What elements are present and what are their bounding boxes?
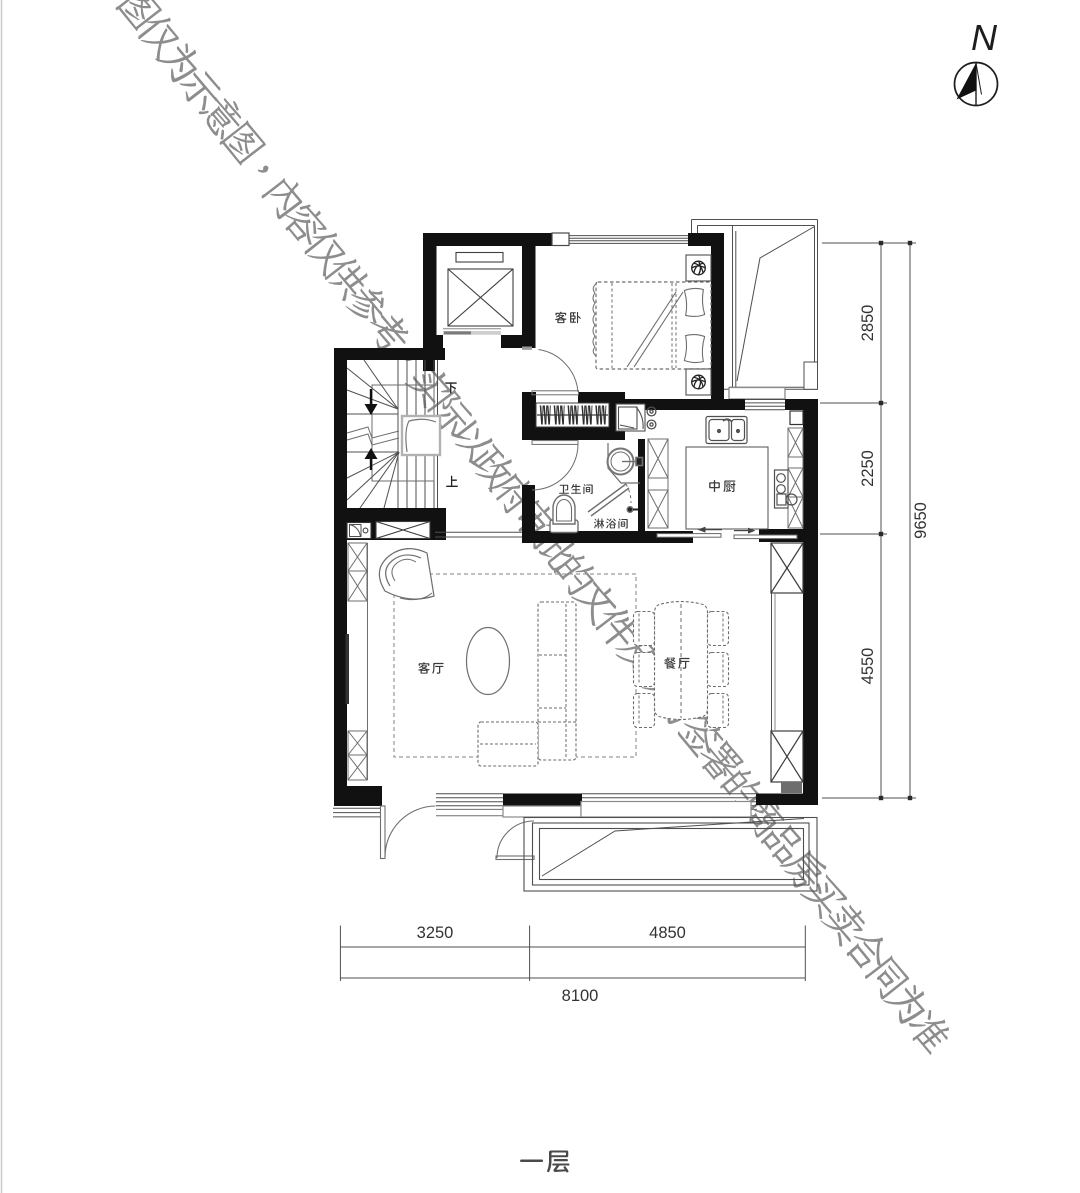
svg-text:4850: 4850	[649, 924, 686, 942]
svg-text:3250: 3250	[417, 924, 454, 942]
svg-text:2850: 2850	[859, 305, 877, 342]
svg-text:2250: 2250	[859, 450, 877, 487]
svg-text:N: N	[971, 17, 998, 58]
svg-text:8100: 8100	[562, 987, 599, 1005]
svg-text:4550: 4550	[859, 648, 877, 685]
svg-text:9650: 9650	[912, 502, 930, 539]
